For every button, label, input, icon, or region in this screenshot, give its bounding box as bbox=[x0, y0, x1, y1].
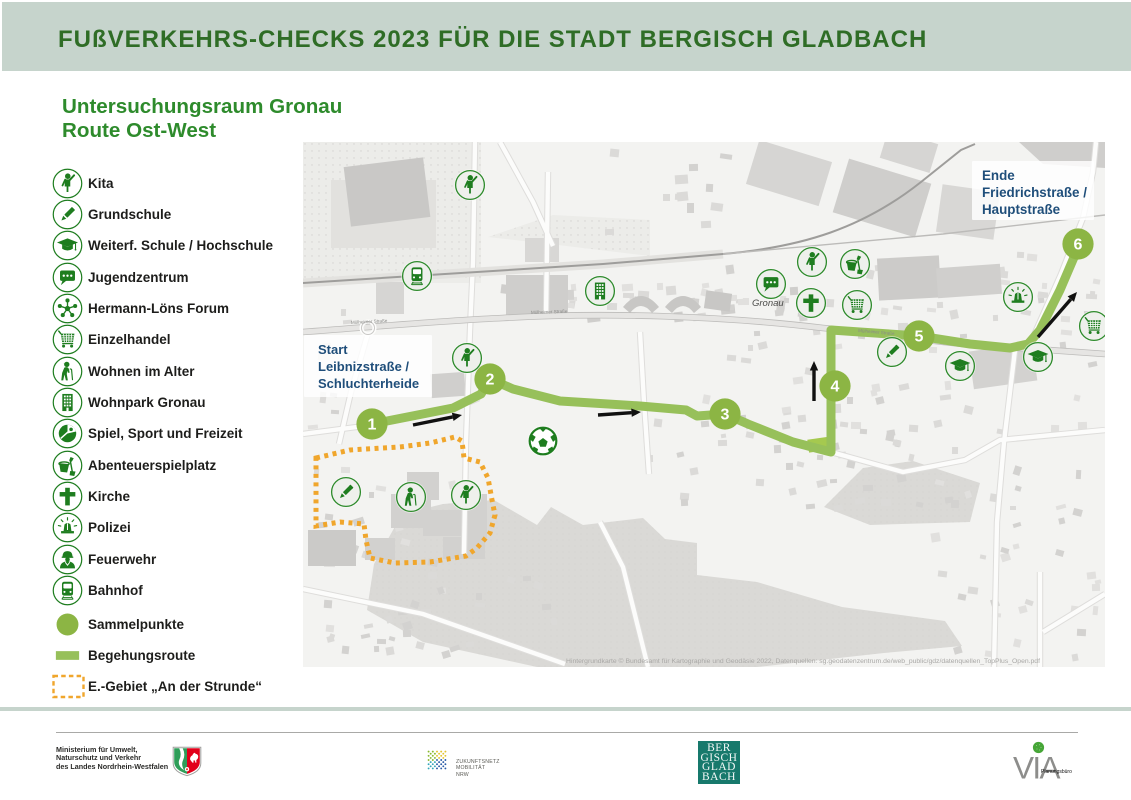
svg-text:5: 5 bbox=[915, 328, 924, 345]
svg-text:Hintergrundkarte © Bundesamt f: Hintergrundkarte © Bundesamt für Kartogr… bbox=[566, 657, 1040, 665]
svg-text:Leibnizstraße /: Leibnizstraße / bbox=[318, 359, 409, 374]
svg-text:Hauptstraße: Hauptstraße bbox=[982, 202, 1060, 217]
svg-text:2: 2 bbox=[486, 371, 495, 388]
svg-text:1: 1 bbox=[368, 416, 377, 433]
svg-text:Ende: Ende bbox=[982, 168, 1015, 183]
svg-text:Schluchterheide: Schluchterheide bbox=[318, 376, 419, 391]
svg-text:6: 6 bbox=[1074, 236, 1083, 253]
svg-text:Friedrichstraße /: Friedrichstraße / bbox=[982, 185, 1087, 200]
svg-text:Planungsbüro: Planungsbüro bbox=[1041, 769, 1072, 775]
svg-text:Gronau: Gronau bbox=[752, 298, 784, 309]
svg-text:3: 3 bbox=[721, 406, 730, 423]
svg-text:4: 4 bbox=[831, 378, 840, 395]
svg-text:Start: Start bbox=[318, 342, 348, 357]
svg-text:VIA: VIA bbox=[1013, 750, 1061, 785]
